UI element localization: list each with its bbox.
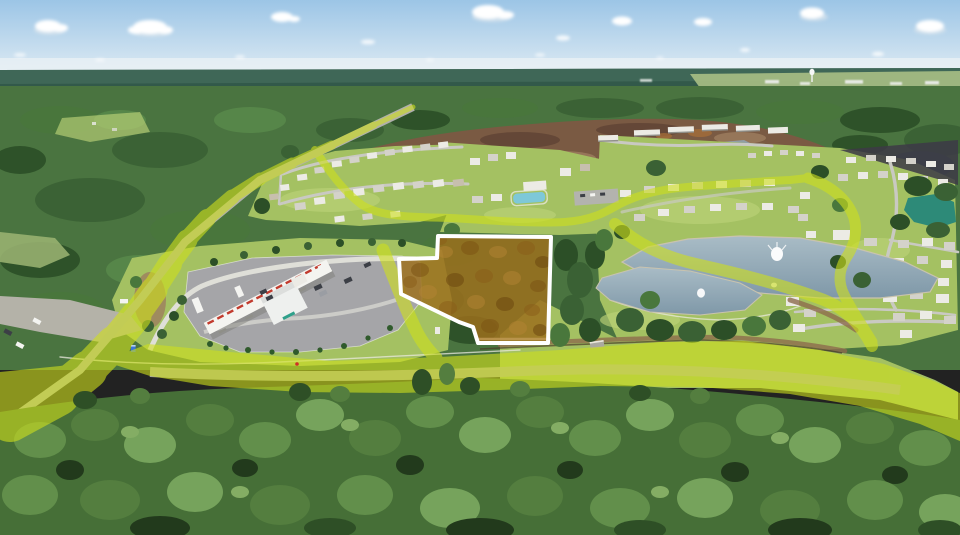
aerial-listing-photo <box>0 0 960 535</box>
aerial-photo-canvas <box>0 0 960 535</box>
survey-flag <box>295 362 299 366</box>
fountain-small-pond <box>697 288 705 297</box>
sky <box>0 0 960 80</box>
monument-sign <box>435 327 440 334</box>
